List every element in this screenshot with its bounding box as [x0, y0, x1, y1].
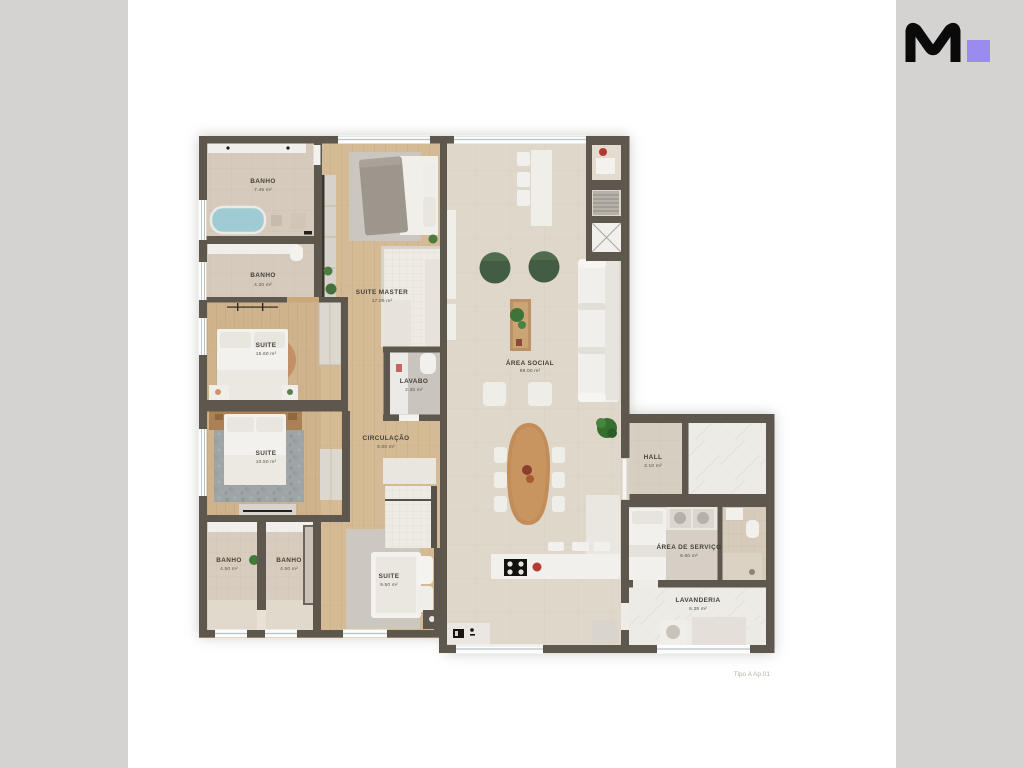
svg-text:4.50 m²: 4.50 m²: [220, 566, 238, 572]
svg-text:SUITE: SUITE: [256, 450, 277, 457]
svg-text:15.60 m²: 15.60 m²: [256, 351, 277, 357]
svg-text:6.35 m²: 6.35 m²: [689, 606, 707, 612]
svg-text:ÁREA SOCIAL: ÁREA SOCIAL: [506, 358, 554, 367]
svg-text:SUITE: SUITE: [256, 342, 277, 349]
svg-text:88.00 m²: 88.00 m²: [520, 368, 541, 374]
svg-text:7.45 m²: 7.45 m²: [254, 187, 272, 193]
svg-text:3.10 m²: 3.10 m²: [644, 463, 662, 469]
svg-text:HALL: HALL: [644, 454, 663, 461]
svg-text:BANHO: BANHO: [250, 178, 275, 185]
svg-text:17.05 m²: 17.05 m²: [372, 298, 393, 304]
svg-text:2.35 m²: 2.35 m²: [405, 387, 423, 393]
svg-text:4.50 m²: 4.50 m²: [280, 566, 298, 572]
svg-text:BANHO: BANHO: [276, 557, 301, 564]
svg-text:6.60 m²: 6.60 m²: [680, 553, 698, 559]
svg-text:LAVANDERIA: LAVANDERIA: [676, 597, 721, 604]
svg-text:4.30 m²: 4.30 m²: [254, 282, 272, 288]
svg-text:LAVABO: LAVABO: [400, 378, 428, 385]
svg-text:CIRCULAÇÃO: CIRCULAÇÃO: [363, 433, 410, 442]
svg-text:6.00 m²: 6.00 m²: [377, 444, 395, 450]
svg-text:Tipo A Ap.01: Tipo A Ap.01: [734, 671, 771, 678]
svg-text:9.50 m²: 9.50 m²: [380, 582, 398, 588]
svg-text:SUITE MASTER: SUITE MASTER: [356, 289, 408, 296]
svg-text:SUITE: SUITE: [379, 573, 400, 580]
svg-text:BANHO: BANHO: [216, 557, 241, 564]
svg-text:ÁREA DE SERVIÇO: ÁREA DE SERVIÇO: [657, 542, 722, 551]
svg-text:10.50 m²: 10.50 m²: [256, 459, 277, 465]
svg-text:BANHO: BANHO: [250, 272, 275, 279]
